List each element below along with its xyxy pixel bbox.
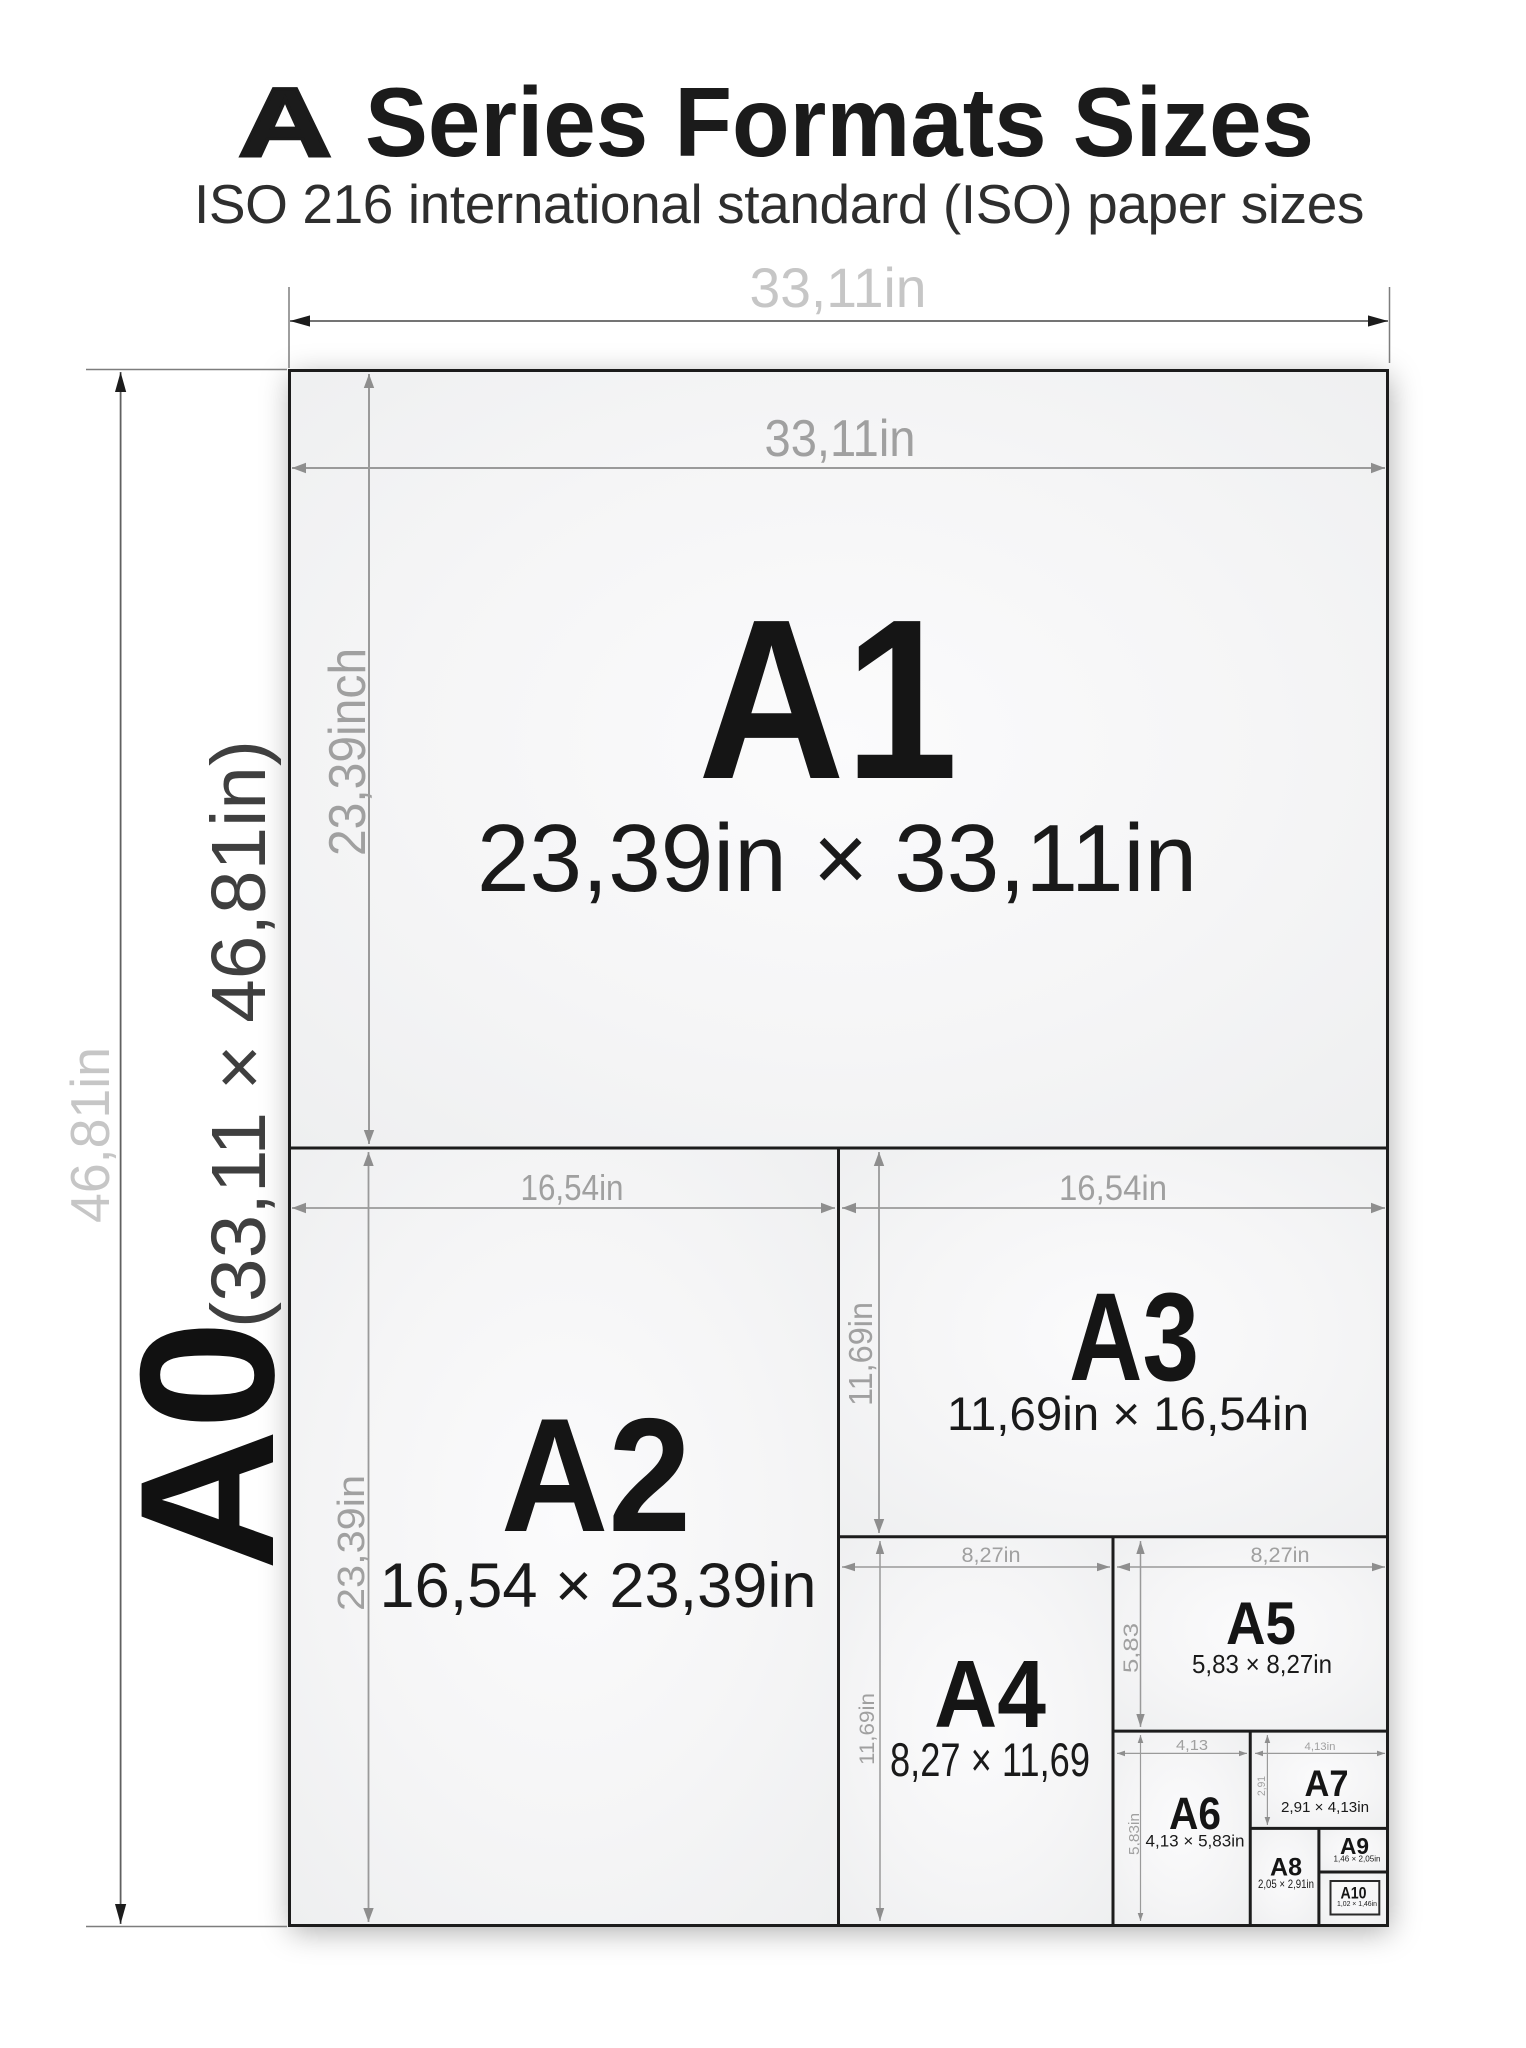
svg-text:5,83in: 5,83in <box>1126 1813 1143 1855</box>
svg-text:11,69in × 16,54in: 11,69in × 16,54in <box>947 1387 1309 1440</box>
svg-text:2,91: 2,91 <box>1256 1776 1268 1796</box>
svg-text:A2: A2 <box>501 1385 691 1566</box>
svg-text:2,91 × 4,13in: 2,91 × 4,13in <box>1281 1800 1369 1816</box>
svg-text:16,54 × 23,39in: 16,54 × 23,39in <box>380 1551 817 1621</box>
svg-text:1,02 × 1,46in: 1,02 × 1,46in <box>1337 1899 1377 1908</box>
svg-text:A4: A4 <box>934 1641 1046 1748</box>
svg-text:(33,11 × 46,81in): (33,11 × 46,81in) <box>196 740 282 1328</box>
svg-text:33,11in: 33,11in <box>765 410 916 468</box>
svg-text:A1: A1 <box>698 573 958 827</box>
svg-text:A5: A5 <box>1226 1590 1296 1657</box>
svg-text:A0: A0 <box>101 1321 314 1571</box>
svg-text:5,83: 5,83 <box>1120 1623 1143 1673</box>
svg-text:4,13: 4,13 <box>1176 1737 1208 1754</box>
svg-text:11,69in: 11,69in <box>842 1302 879 1406</box>
svg-text:16,54in: 16,54in <box>521 1167 624 1208</box>
svg-text:23,39in: 23,39in <box>331 1475 373 1611</box>
svg-text:33,11in: 33,11in <box>750 256 927 319</box>
svg-text:5,83 × 8,27in: 5,83 × 8,27in <box>1192 1649 1332 1679</box>
svg-text:Series Formats Sizes: Series Formats Sizes <box>365 67 1314 177</box>
svg-text:ISO 216 international standard: ISO 216 international standard (ISO) pap… <box>194 173 1364 235</box>
svg-text:46,81in: 46,81in <box>59 1047 121 1223</box>
svg-text:23,39inch: 23,39inch <box>319 648 377 856</box>
svg-text:A7: A7 <box>1305 1763 1349 1804</box>
svg-text:1,46 × 2,05in: 1,46 × 2,05in <box>1334 1854 1381 1864</box>
svg-text:8,27in: 8,27in <box>1251 1544 1310 1567</box>
svg-text:23,39in × 33,11in: 23,39in × 33,11in <box>477 805 1197 912</box>
svg-text:4,13in: 4,13in <box>1305 1741 1336 1753</box>
svg-text:2,05 × 2,91in: 2,05 × 2,91in <box>1258 1877 1314 1891</box>
svg-text:11,69in: 11,69in <box>856 1693 879 1765</box>
svg-text:4,13 × 5,83in: 4,13 × 5,83in <box>1146 1832 1245 1851</box>
svg-text:A: A <box>238 67 332 177</box>
svg-text:8,27 × 11,69: 8,27 × 11,69 <box>890 1733 1090 1786</box>
svg-text:8,27in: 8,27in <box>962 1544 1021 1567</box>
svg-text:16,54in: 16,54in <box>1059 1169 1167 1208</box>
